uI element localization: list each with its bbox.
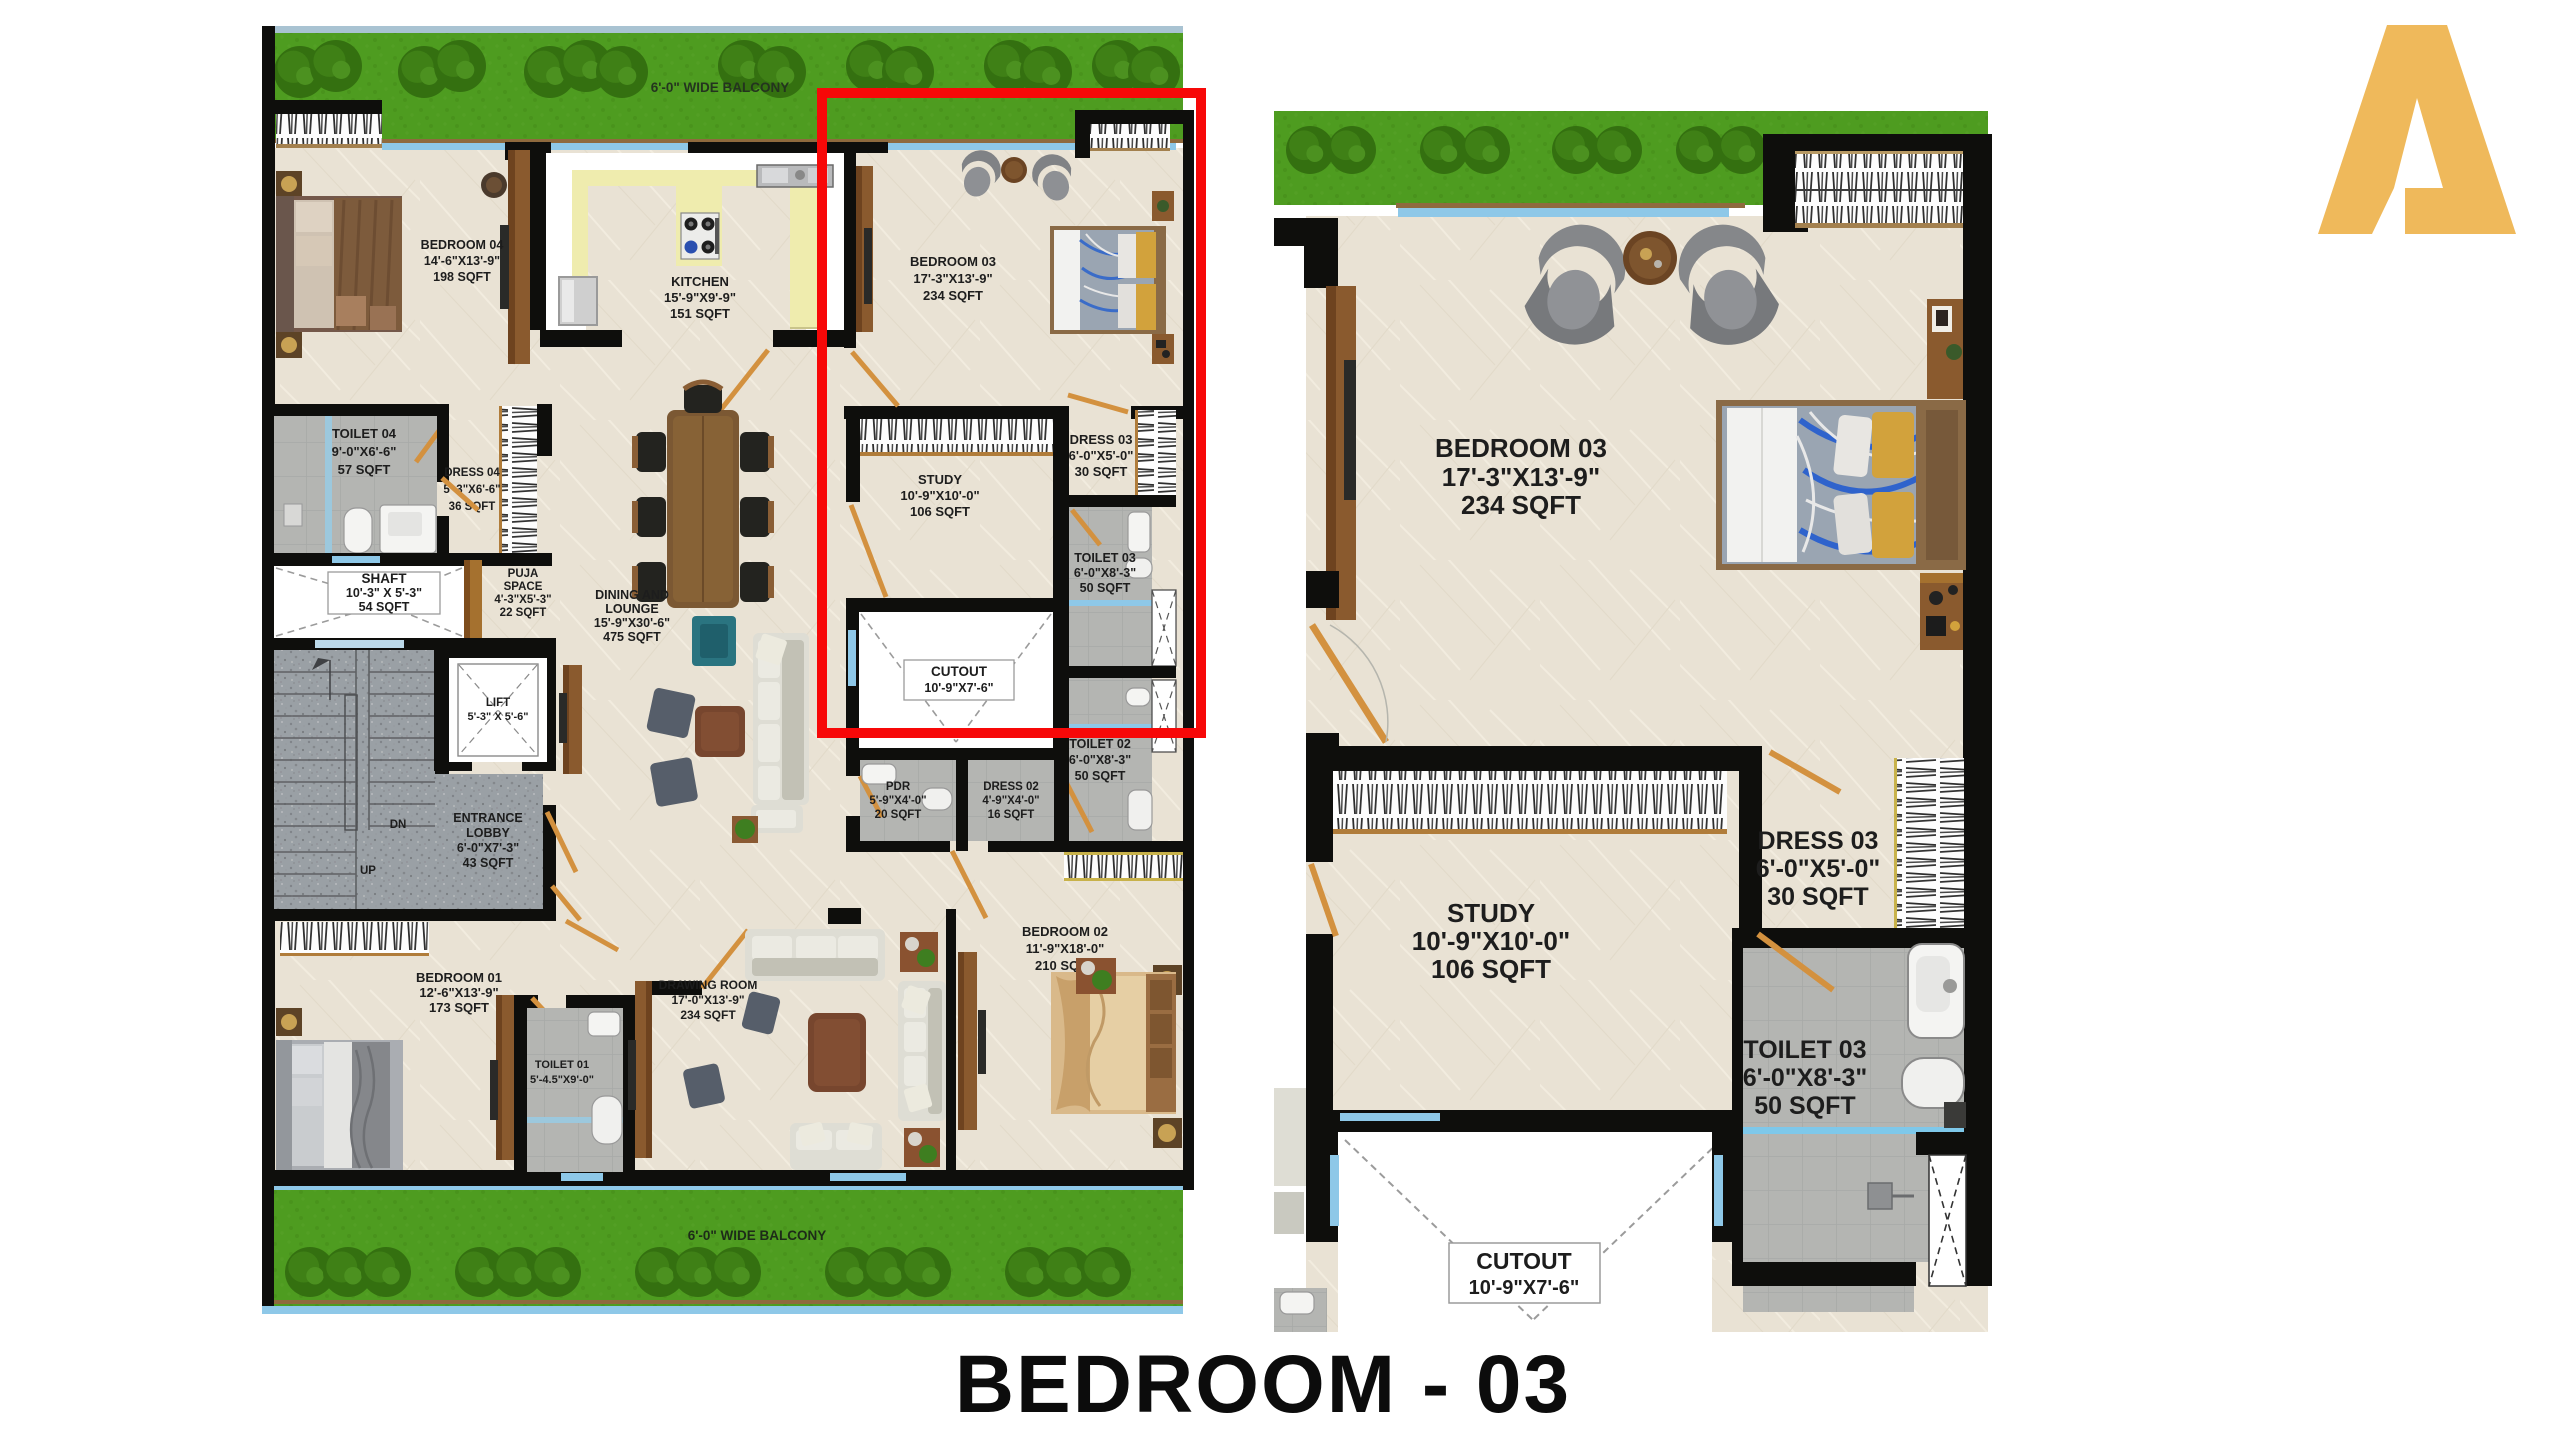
svg-text:234 SQFT: 234 SQFT bbox=[1461, 490, 1581, 520]
svg-text:LOUNGE: LOUNGE bbox=[605, 602, 658, 616]
svg-text:14'-6"X13'-9": 14'-6"X13'-9" bbox=[424, 254, 500, 268]
svg-text:9'-0"X6'-6": 9'-0"X6'-6" bbox=[332, 444, 397, 459]
svg-text:TOILET 03: TOILET 03 bbox=[1743, 1036, 1866, 1064]
svg-text:6'-0" WIDE BALCONY: 6'-0" WIDE BALCONY bbox=[651, 80, 790, 95]
svg-text:6'-0"X8'-3": 6'-0"X8'-3" bbox=[1074, 566, 1136, 580]
svg-text:30 SQFT: 30 SQFT bbox=[1767, 883, 1868, 911]
svg-text:SPACE: SPACE bbox=[504, 581, 543, 593]
svg-text:ENTRANCE: ENTRANCE bbox=[453, 811, 522, 825]
svg-text:KITCHEN: KITCHEN bbox=[671, 274, 729, 289]
svg-text:DRESS 03: DRESS 03 bbox=[1758, 827, 1879, 855]
svg-text:4'-3"X5'-3": 4'-3"X5'-3" bbox=[494, 594, 551, 606]
svg-text:10'-9"X7'-6": 10'-9"X7'-6" bbox=[1469, 1277, 1580, 1299]
svg-text:DRAWING ROOM: DRAWING ROOM bbox=[659, 978, 758, 992]
svg-text:50 SQFT: 50 SQFT bbox=[1754, 1092, 1855, 1120]
svg-text:50 SQFT: 50 SQFT bbox=[1075, 769, 1126, 783]
svg-text:17'-0"X13'-9": 17'-0"X13'-9" bbox=[671, 993, 744, 1007]
svg-text:5'-3" X 5'-6": 5'-3" X 5'-6" bbox=[468, 711, 529, 723]
svg-text:4'-9"X4'-0": 4'-9"X4'-0" bbox=[982, 795, 1039, 807]
svg-text:PUJA: PUJA bbox=[508, 568, 539, 580]
svg-text:11'-9"X18'-0": 11'-9"X18'-0" bbox=[1026, 941, 1105, 956]
svg-text:STUDY: STUDY bbox=[918, 472, 962, 487]
svg-text:DRESS 04: DRESS 04 bbox=[444, 467, 500, 479]
svg-text:30 SQFT: 30 SQFT bbox=[1075, 464, 1128, 479]
svg-text:6'-0" WIDE BALCONY: 6'-0" WIDE BALCONY bbox=[688, 1228, 827, 1243]
svg-text:50 SQFT: 50 SQFT bbox=[1080, 581, 1131, 595]
svg-text:12'-6"X13'-9": 12'-6"X13'-9" bbox=[419, 985, 498, 1000]
svg-text:5'-4.5"X9'-0": 5'-4.5"X9'-0" bbox=[530, 1074, 594, 1086]
svg-text:BEDROOM 04: BEDROOM 04 bbox=[421, 238, 504, 252]
svg-text:TOILET 02: TOILET 02 bbox=[1069, 737, 1131, 751]
svg-text:6'-0"X7'-3": 6'-0"X7'-3" bbox=[457, 841, 519, 855]
svg-text:475 SQFT: 475 SQFT bbox=[603, 630, 661, 644]
svg-text:17'-3"X13'-9": 17'-3"X13'-9" bbox=[913, 271, 992, 286]
svg-text:TOILET 01: TOILET 01 bbox=[535, 1059, 589, 1071]
svg-text:106 SQFT: 106 SQFT bbox=[910, 504, 970, 519]
svg-text:LOBBY: LOBBY bbox=[466, 826, 510, 840]
svg-text:6'-0"X8'-3": 6'-0"X8'-3" bbox=[1743, 1064, 1868, 1092]
svg-text:6'-0"X5'-0": 6'-0"X5'-0" bbox=[1069, 448, 1134, 463]
svg-text:43 SQFT: 43 SQFT bbox=[463, 856, 514, 870]
svg-text:PDR: PDR bbox=[886, 781, 911, 793]
svg-text:5'-9"X4'-0": 5'-9"X4'-0" bbox=[869, 795, 926, 807]
svg-text:198 SQFT: 198 SQFT bbox=[433, 270, 491, 284]
svg-text:STUDY: STUDY bbox=[1447, 898, 1535, 928]
svg-text:10'-3" X 5'-3": 10'-3" X 5'-3" bbox=[346, 586, 422, 600]
svg-text:10'-9"X7'-6": 10'-9"X7'-6" bbox=[924, 681, 993, 695]
svg-text:TOILET 03: TOILET 03 bbox=[1074, 551, 1136, 565]
svg-text:TOILET 04: TOILET 04 bbox=[332, 426, 397, 441]
svg-text:10'-9"X10'-0": 10'-9"X10'-0" bbox=[1412, 926, 1570, 956]
svg-text:BEDROOM 02: BEDROOM 02 bbox=[1022, 924, 1108, 939]
svg-text:54 SQFT: 54 SQFT bbox=[359, 600, 410, 614]
svg-text:DN: DN bbox=[390, 819, 407, 831]
svg-text:BEDROOM 03: BEDROOM 03 bbox=[910, 254, 996, 269]
svg-text:10'-9"X10'-0": 10'-9"X10'-0" bbox=[900, 488, 979, 503]
svg-text:SHAFT: SHAFT bbox=[362, 571, 408, 586]
svg-text:DRESS 03: DRESS 03 bbox=[1070, 432, 1133, 447]
svg-text:234 SQFT: 234 SQFT bbox=[680, 1008, 736, 1022]
svg-text:15'-9"X9'-9": 15'-9"X9'-9" bbox=[664, 290, 736, 305]
svg-text:BEDROOM 03: BEDROOM 03 bbox=[1435, 433, 1607, 463]
svg-text:234 SQFT: 234 SQFT bbox=[923, 288, 983, 303]
svg-text:22 SQFT: 22 SQFT bbox=[500, 607, 547, 619]
svg-text:57 SQFT: 57 SQFT bbox=[338, 462, 391, 477]
svg-text:16 SQFT: 16 SQFT bbox=[988, 809, 1035, 821]
svg-text:6'-0"X5'-0": 6'-0"X5'-0" bbox=[1756, 855, 1881, 883]
svg-text:DINING AND: DINING AND bbox=[595, 588, 669, 602]
svg-text:20 SQFT: 20 SQFT bbox=[875, 809, 922, 821]
svg-text:DRESS 02: DRESS 02 bbox=[983, 781, 1039, 793]
svg-text:15'-9"X30'-6": 15'-9"X30'-6" bbox=[594, 616, 670, 630]
svg-text:106 SQFT: 106 SQFT bbox=[1431, 954, 1551, 984]
svg-text:LIFT: LIFT bbox=[486, 697, 510, 709]
svg-text:BEDROOM - 03: BEDROOM - 03 bbox=[955, 1339, 1571, 1430]
svg-text:UP: UP bbox=[360, 865, 376, 877]
svg-text:CUTOUT: CUTOUT bbox=[931, 664, 988, 679]
svg-text:6'-0"X8'-3": 6'-0"X8'-3" bbox=[1069, 753, 1131, 767]
svg-text:17'-3"X13'-9": 17'-3"X13'-9" bbox=[1442, 462, 1600, 492]
svg-text:BEDROOM 01: BEDROOM 01 bbox=[416, 970, 502, 985]
svg-text:CUTOUT: CUTOUT bbox=[1476, 1248, 1571, 1274]
svg-text:151 SQFT: 151 SQFT bbox=[670, 306, 730, 321]
svg-text:173 SQFT: 173 SQFT bbox=[429, 1000, 489, 1015]
